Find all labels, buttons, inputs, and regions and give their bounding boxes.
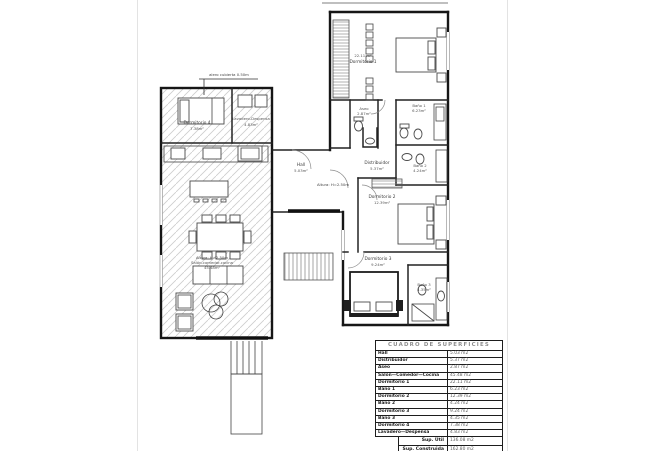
eave-annotation-text: alero cubierta 0.50m xyxy=(209,72,249,77)
table-row: Baño 16.23 m2 xyxy=(375,386,503,394)
wardrobe-dormitorio2 xyxy=(372,179,402,188)
table-summary-row: Sup. Útil136.08 m2 xyxy=(398,436,503,446)
table-row: Dormitorio 122.11 m2 xyxy=(375,379,503,387)
bed-dormitorio2 xyxy=(372,179,446,249)
row-value: 9.24 m2 xyxy=(447,409,502,415)
row-value: 2.87 m2 xyxy=(447,365,502,371)
table-row: Dormitorio 47.38 m2 xyxy=(375,422,503,430)
aseo-fixtures xyxy=(354,117,375,144)
summary-label: Sup. Construida xyxy=(399,446,447,451)
sink-icon xyxy=(366,138,375,144)
row-value: 4.83 m2 xyxy=(447,430,502,436)
bidet-icon xyxy=(414,129,422,139)
label-dormitorio1-name: Dormitorio 1 xyxy=(349,59,376,65)
sink-icon xyxy=(171,148,185,159)
summary-value: 136.08 m2 xyxy=(447,437,502,445)
row-label: Dormitorio 1 xyxy=(376,380,447,386)
sink-icon xyxy=(402,154,412,161)
exterior-steps xyxy=(231,341,262,374)
row-value: 7.38 m2 xyxy=(447,423,502,429)
summary-value: 162.80 m2 xyxy=(447,446,502,451)
row-label: Lavadero—Despensa xyxy=(376,430,447,436)
pergola-deck xyxy=(284,253,333,280)
toilet-icon xyxy=(400,128,408,138)
row-label: Salón—Comedor—Cocina xyxy=(376,373,447,379)
row-value: 4.35 m2 xyxy=(447,416,502,422)
table-row: Hall5.03 m2 xyxy=(375,350,503,358)
row-value: 5.37 m2 xyxy=(447,358,502,364)
label-dormitorio3-area: 9.24m² xyxy=(371,262,385,267)
row-value: 4.24 m2 xyxy=(447,401,502,407)
table-row: Dormitorio 212.39 m2 xyxy=(375,393,503,401)
row-value: 12.39 m2 xyxy=(447,394,502,400)
toilet-icon xyxy=(354,117,363,121)
table-row: Distribuidor5.37 m2 xyxy=(375,357,503,365)
floorplan-drawing: alero cubierta 0.50m Dormitorio 4 7.38m²… xyxy=(0,0,645,451)
walkway xyxy=(231,374,262,434)
row-label: Dormitorio 3 xyxy=(376,409,447,415)
label-lavadero-area: 4.83m² xyxy=(244,122,258,127)
row-label: Aseo xyxy=(376,365,447,371)
table-row: Lavadero—Despensa4.83 m2 xyxy=(375,429,503,437)
label-bano3-area: 4.35m² xyxy=(417,287,431,292)
row-value: 6.23 m2 xyxy=(447,387,502,393)
bed-dormitorio1 xyxy=(396,28,446,82)
label-distribuidor-area: 5.37m² xyxy=(370,166,384,171)
table-row: Baño 24.24 m2 xyxy=(375,400,503,408)
table-row: Salón—Comedor—Cocina45.48 m2 xyxy=(375,372,503,380)
label-dormitorio4-area: 7.38m² xyxy=(190,126,204,131)
bed-dormitorio3 xyxy=(344,272,403,317)
label-bano1-area: 6.23m² xyxy=(412,108,426,113)
shower-icon xyxy=(436,150,447,182)
row-label: Distribuidor xyxy=(376,358,447,364)
label-bano2-area: 4.24m² xyxy=(413,168,427,173)
sink-icon xyxy=(438,291,445,301)
surface-areas-table: CUADRO DE SUPERFICIES Hall5.03 m2 Distri… xyxy=(375,340,503,451)
label-aseo-area: 2.87m² xyxy=(357,111,371,116)
row-value: 45.48 m2 xyxy=(447,373,502,379)
cooktop-icon xyxy=(203,148,221,159)
floorplan-page: alero cubierta 0.50m Dormitorio 4 7.38m²… xyxy=(0,0,645,451)
table-row: Baño 34.35 m2 xyxy=(375,415,503,423)
table-summary-row: Sup. Construida162.80 m2 xyxy=(398,445,503,451)
label-hall-area: 5.03m² xyxy=(294,168,308,173)
label-lavadero-name: Lavadero-Despensa xyxy=(232,116,270,121)
label-dormitorio1-area: 22.11 m² xyxy=(354,53,372,58)
row-label: Dormitorio 4 xyxy=(376,423,447,429)
table-title: CUADRO DE SUPERFICIES xyxy=(375,340,503,351)
label-dormitorio2-area: 12.39m² xyxy=(374,200,391,205)
row-label: Baño 2 xyxy=(376,401,447,407)
row-label: Dormitorio 2 xyxy=(376,394,447,400)
label-salon-area: 45.48m² xyxy=(204,265,221,270)
table-row: Aseo2.87 m2 xyxy=(375,364,503,372)
hall-connector xyxy=(273,150,343,280)
label-altura-hall: Altura: H=2.50m xyxy=(317,182,349,187)
row-label: Baño 1 xyxy=(376,387,447,393)
table-row: Dormitorio 39.24 m2 xyxy=(375,408,503,416)
row-label: Hall xyxy=(376,351,447,357)
row-label: Baño 3 xyxy=(376,416,447,422)
wardrobe-dormitorio1 xyxy=(333,20,349,98)
row-value: 5.03 m2 xyxy=(447,351,502,357)
row-value: 22.11 m2 xyxy=(447,380,502,386)
summary-label: Sup. Útil xyxy=(399,437,447,445)
